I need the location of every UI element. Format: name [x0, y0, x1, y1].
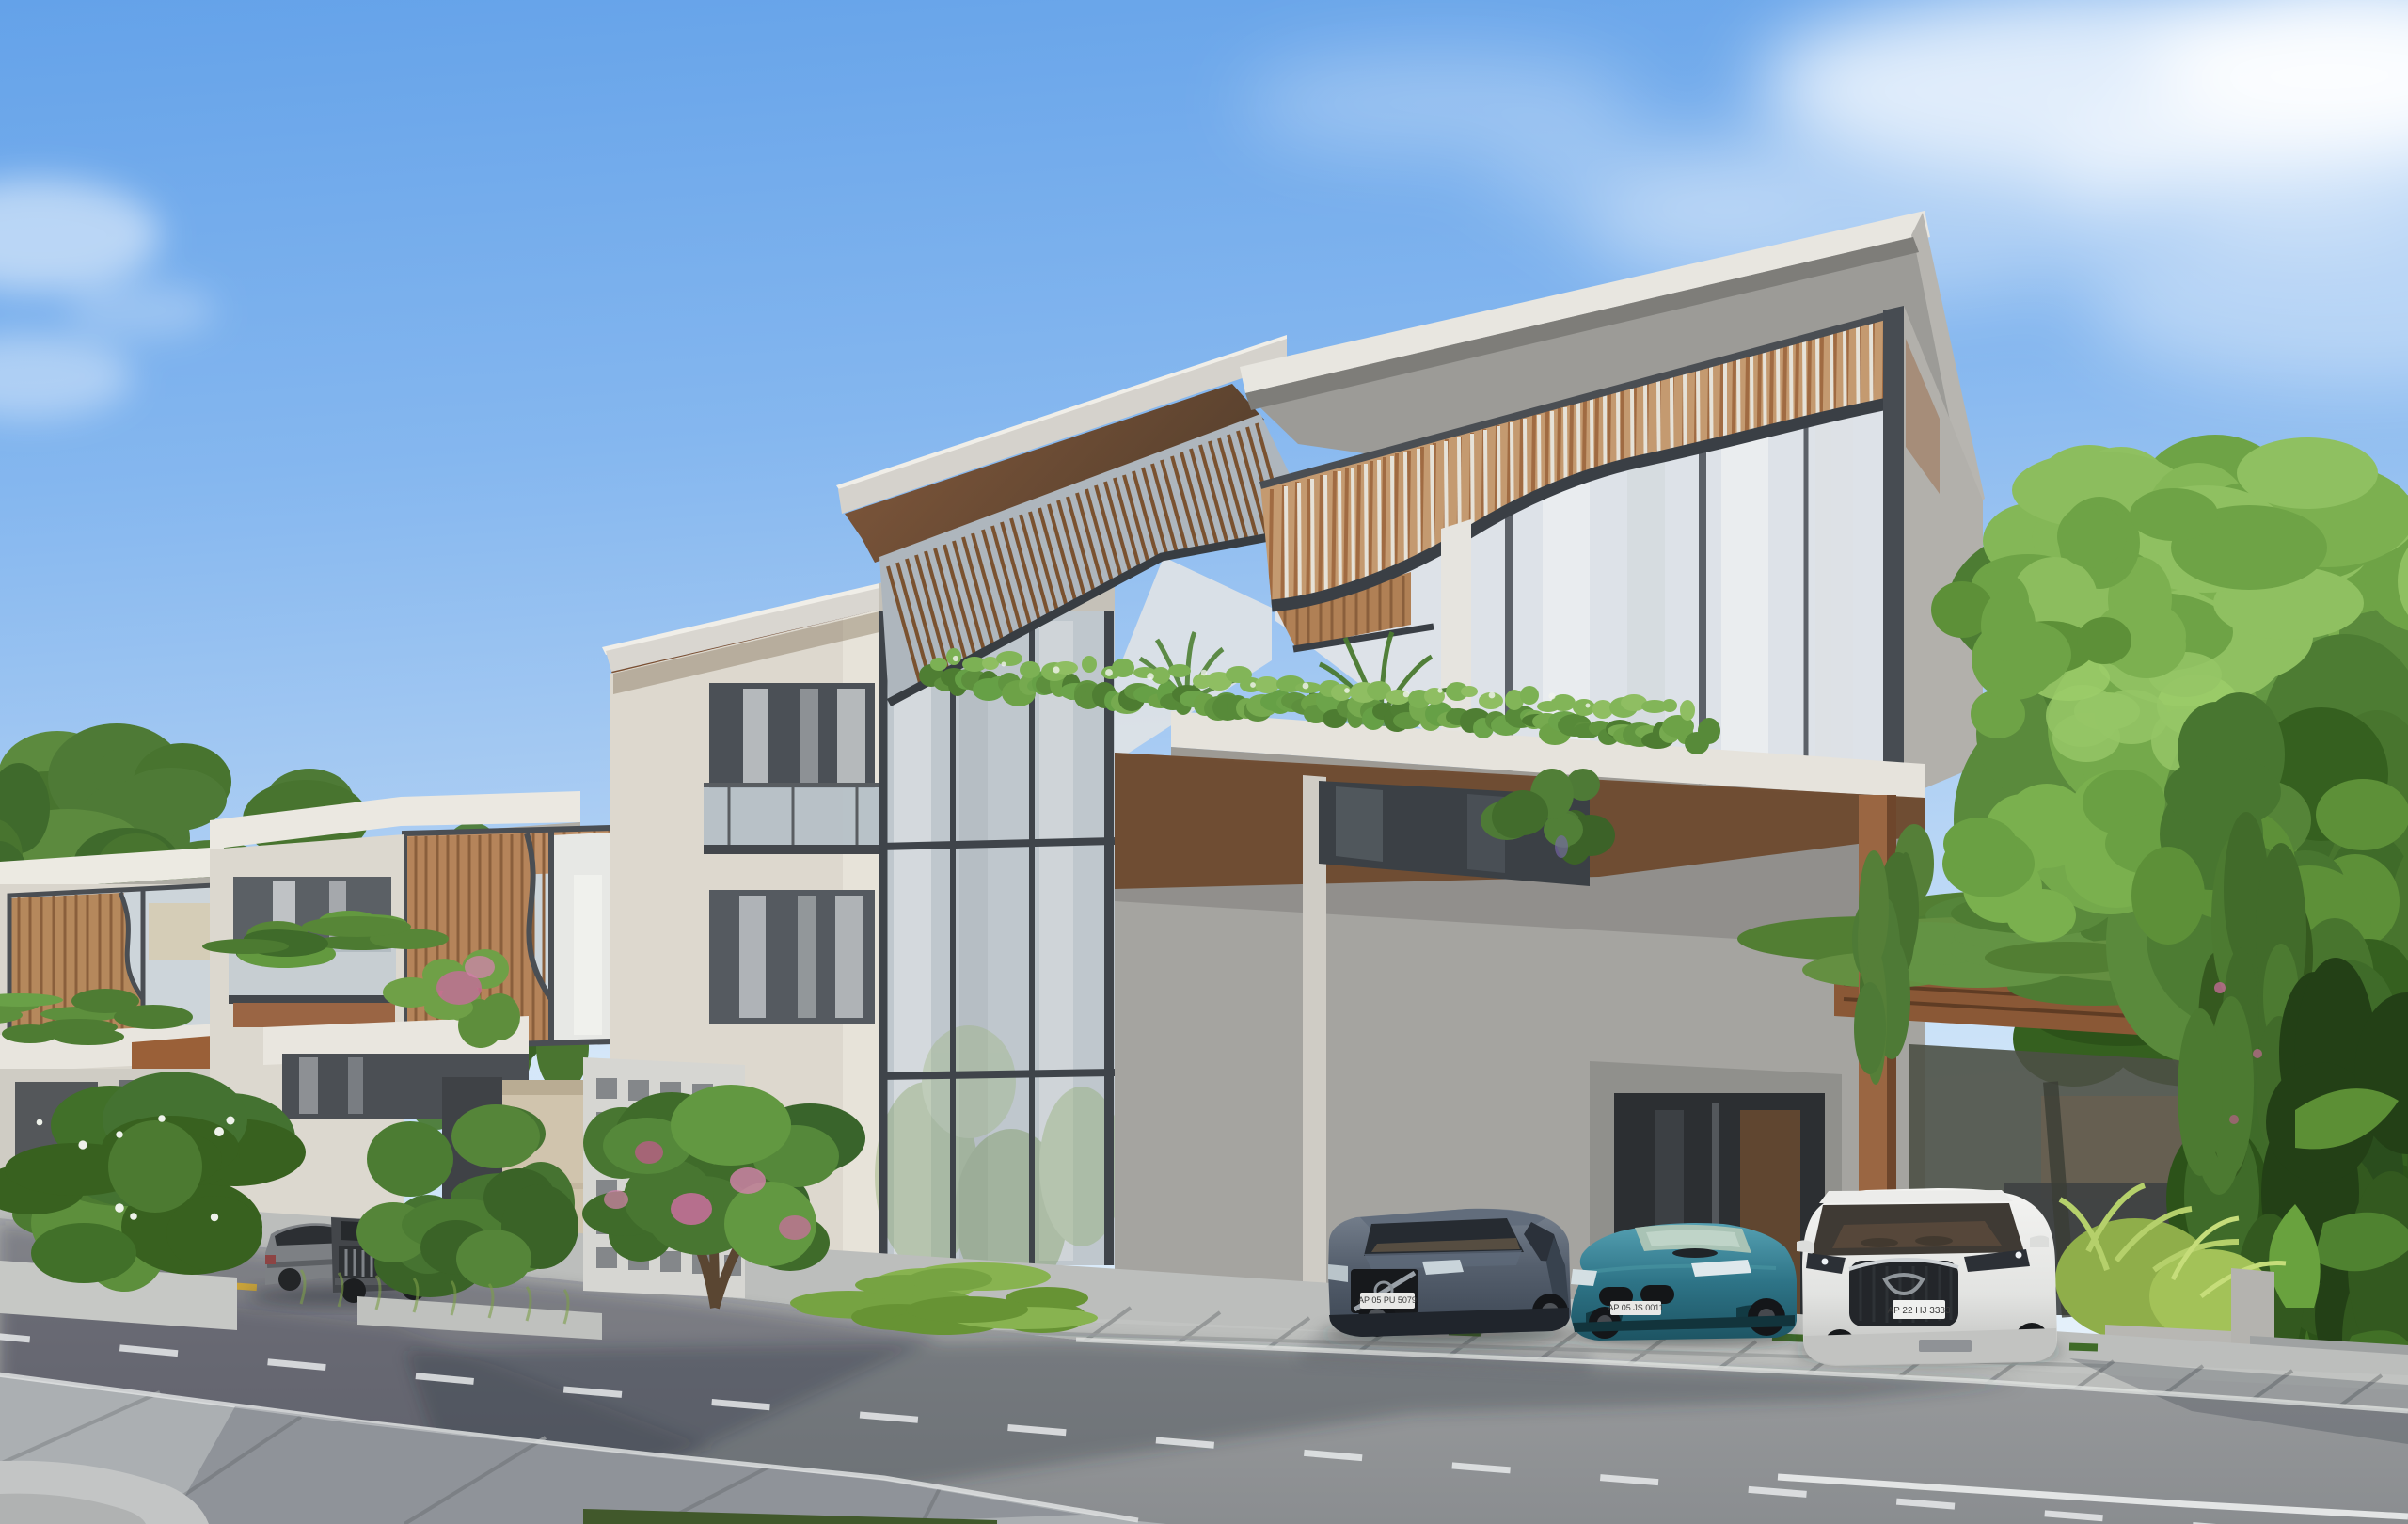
svg-text:AP 05 JS 0011: AP 05 JS 0011: [1608, 1303, 1663, 1312]
svg-text:AP 05 PU 5079: AP 05 PU 5079: [1358, 1295, 1417, 1305]
svg-text:AP 22 HJ 3333: AP 22 HJ 3333: [1887, 1306, 1951, 1316]
